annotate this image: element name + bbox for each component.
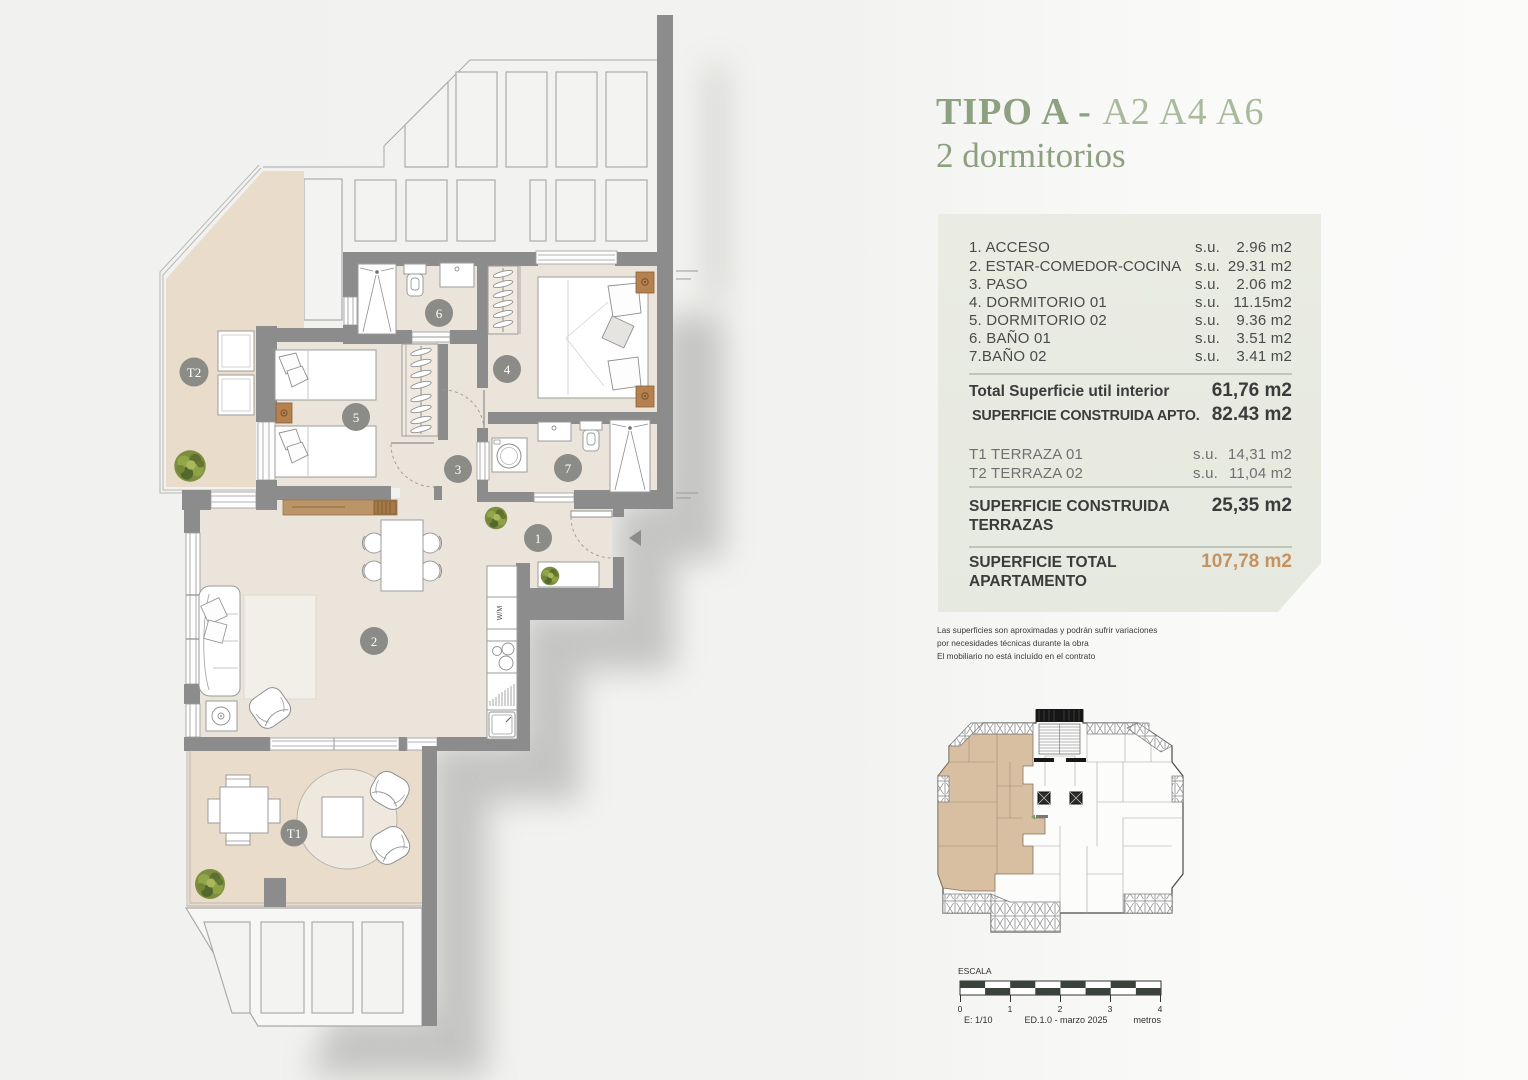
svg-text:5. DORMITORIO 02: 5. DORMITORIO 02 xyxy=(969,312,1107,329)
svg-text:7.BAÑO 02: 7.BAÑO 02 xyxy=(969,348,1047,365)
svg-text:E: 1/10: E: 1/10 xyxy=(964,1015,993,1025)
svg-text:7: 7 xyxy=(565,461,572,476)
svg-text:3.51 m2: 3.51 m2 xyxy=(1236,330,1292,347)
svg-text:T1 TERRAZA 01: T1 TERRAZA 01 xyxy=(969,446,1083,463)
svg-text:Las superficies son aproximada: Las superficies son aproximadas y podrán… xyxy=(937,625,1157,635)
svg-text:1: 1 xyxy=(535,531,542,546)
svg-text:3: 3 xyxy=(455,462,462,477)
svg-text:s.u.: s.u. xyxy=(1195,276,1220,293)
svg-text:T1: T1 xyxy=(287,826,301,841)
svg-text:s.u.: s.u. xyxy=(1193,446,1218,463)
svg-text:2 dormitorios: 2 dormitorios xyxy=(936,136,1126,175)
svg-text:metros: metros xyxy=(1133,1015,1161,1025)
svg-text:s.u.: s.u. xyxy=(1195,348,1220,365)
svg-text:14,31 m2: 14,31 m2 xyxy=(1228,446,1292,463)
svg-text:W/M: W/M xyxy=(497,606,504,621)
svg-text:82.43 m2: 82.43 m2 xyxy=(1212,404,1292,425)
svg-text:1. ACCESO: 1. ACCESO xyxy=(969,239,1050,256)
svg-text:T2 TERRAZA 02: T2 TERRAZA 02 xyxy=(969,465,1083,482)
svg-text:T2: T2 xyxy=(187,365,201,380)
svg-text:3. PASO: 3. PASO xyxy=(969,276,1028,293)
svg-text:s.u.: s.u. xyxy=(1195,239,1220,256)
svg-text:0: 0 xyxy=(958,1004,963,1014)
svg-text:SUPERFICIE CONSTRUIDA APTO.: SUPERFICIE CONSTRUIDA APTO. xyxy=(972,408,1200,424)
svg-text:9.36 m2: 9.36 m2 xyxy=(1236,312,1292,329)
svg-text:4: 4 xyxy=(1158,1004,1163,1014)
svg-text:s.u.: s.u. xyxy=(1193,465,1218,482)
svg-text:6. BAÑO 01: 6. BAÑO 01 xyxy=(969,330,1051,347)
svg-text:5: 5 xyxy=(353,410,360,425)
svg-text:1: 1 xyxy=(1008,1004,1013,1014)
svg-text:APARTAMENTO: APARTAMENTO xyxy=(969,573,1087,590)
svg-text:2: 2 xyxy=(371,634,378,649)
svg-text:11.15m2: 11.15m2 xyxy=(1233,294,1292,311)
svg-text:ED.1.0 - marzo 2025: ED.1.0 - marzo 2025 xyxy=(1024,1015,1107,1025)
svg-text:SUPERFICIE TOTAL: SUPERFICIE TOTAL xyxy=(969,554,1117,571)
svg-text:TERRAZAS: TERRAZAS xyxy=(969,517,1053,534)
svg-text:SUPERFICIE CONSTRUIDA: SUPERFICIE CONSTRUIDA xyxy=(969,498,1170,515)
svg-text:2.06 m2: 2.06 m2 xyxy=(1236,276,1292,293)
svg-text:11,04 m2: 11,04 m2 xyxy=(1229,465,1292,482)
svg-text:s.u.: s.u. xyxy=(1195,294,1220,311)
svg-text:3: 3 xyxy=(1108,1004,1113,1014)
svg-text:2: 2 xyxy=(1058,1004,1063,1014)
svg-text:3.41 m2: 3.41 m2 xyxy=(1236,348,1292,365)
svg-text:6: 6 xyxy=(436,306,443,321)
svg-text:s.u.: s.u. xyxy=(1195,330,1220,347)
svg-text:4: 4 xyxy=(504,362,511,377)
svg-text:29.31 m2: 29.31 m2 xyxy=(1228,258,1292,275)
svg-text:25,35 m2: 25,35 m2 xyxy=(1212,495,1292,516)
svg-text:61,76 m2: 61,76 m2 xyxy=(1212,380,1292,401)
svg-text:s.u.: s.u. xyxy=(1195,312,1220,329)
svg-text:s.u.: s.u. xyxy=(1195,258,1220,275)
svg-text:TIPO A - A2 A4 A6: TIPO A - A2 A4 A6 xyxy=(936,91,1264,133)
svg-text:El mobiliario no está incluído: El mobiliario no está incluído en el con… xyxy=(937,651,1096,661)
svg-text:4. DORMITORIO 01: 4. DORMITORIO 01 xyxy=(969,294,1107,311)
svg-text:107,78 m2: 107,78 m2 xyxy=(1201,551,1292,572)
svg-text:2.96 m2: 2.96 m2 xyxy=(1236,239,1292,256)
svg-text:por necesidades técnicas duran: por necesidades técnicas durante la obra xyxy=(937,638,1089,648)
svg-text:ESCALA: ESCALA xyxy=(958,966,992,976)
svg-text:Total Superficie util interior: Total Superficie util interior xyxy=(969,383,1169,400)
svg-text:2. ESTAR-COMEDOR-COCINA: 2. ESTAR-COMEDOR-COCINA xyxy=(969,258,1181,275)
